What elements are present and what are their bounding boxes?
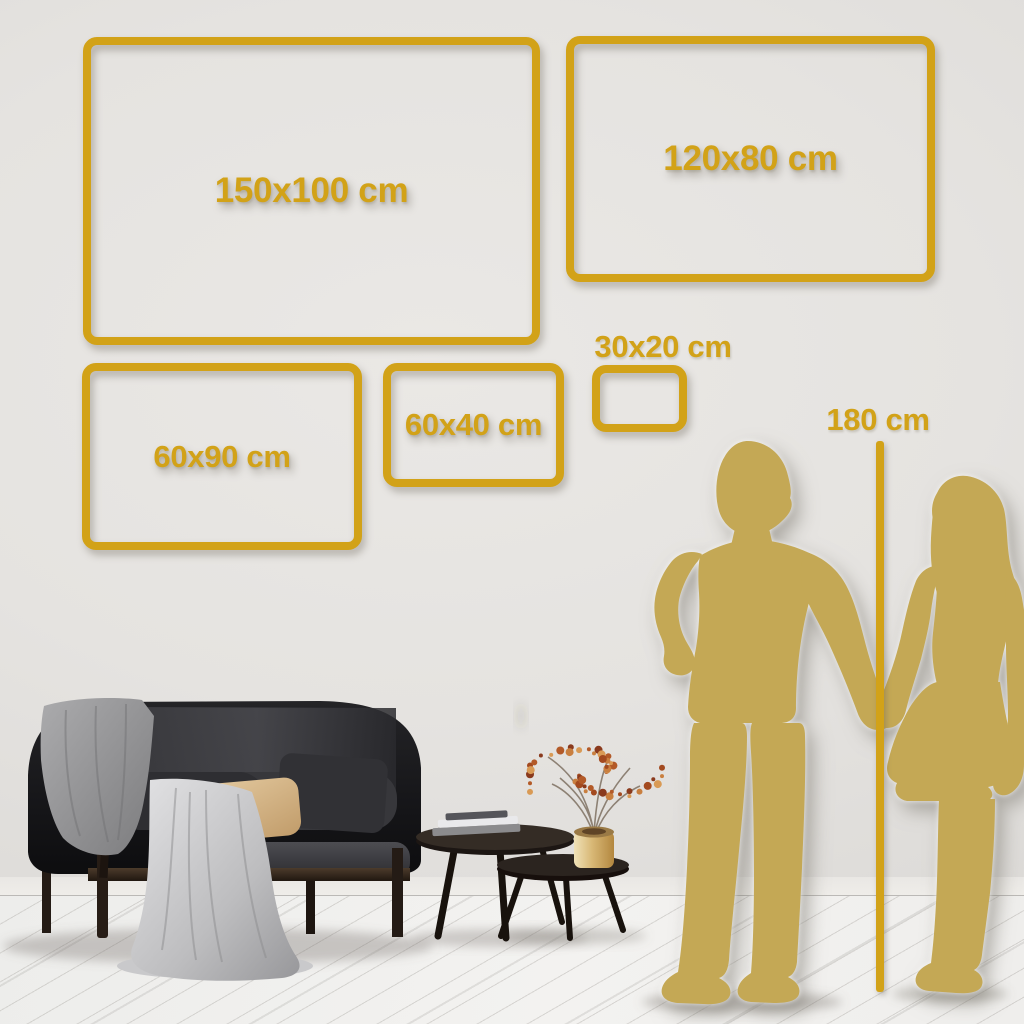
size-frame-30x20 <box>592 365 687 432</box>
wood-floor <box>0 896 1024 1024</box>
height-reference-line <box>876 441 884 992</box>
size-label-60x90: 60x90 cm <box>153 439 290 475</box>
size-label-30x20: 30x20 cm <box>577 329 749 365</box>
size-label-60x40: 60x40 cm <box>405 407 542 443</box>
size-frame-60x40: 60x40 cm <box>383 363 564 487</box>
size-frame-60x90: 60x90 cm <box>82 363 362 550</box>
size-frame-150x100: 150x100 cm <box>83 37 540 345</box>
size-guide-scene: 150x100 cm 120x80 cm 60x90 cm 60x40 cm 3… <box>0 0 1024 1024</box>
size-frame-120x80: 120x80 cm <box>566 36 935 282</box>
size-label-150x100: 150x100 cm <box>215 171 409 211</box>
size-label-120x80: 120x80 cm <box>663 139 837 179</box>
baseboard <box>0 877 1024 896</box>
height-label-180cm: 180 cm <box>802 402 954 438</box>
